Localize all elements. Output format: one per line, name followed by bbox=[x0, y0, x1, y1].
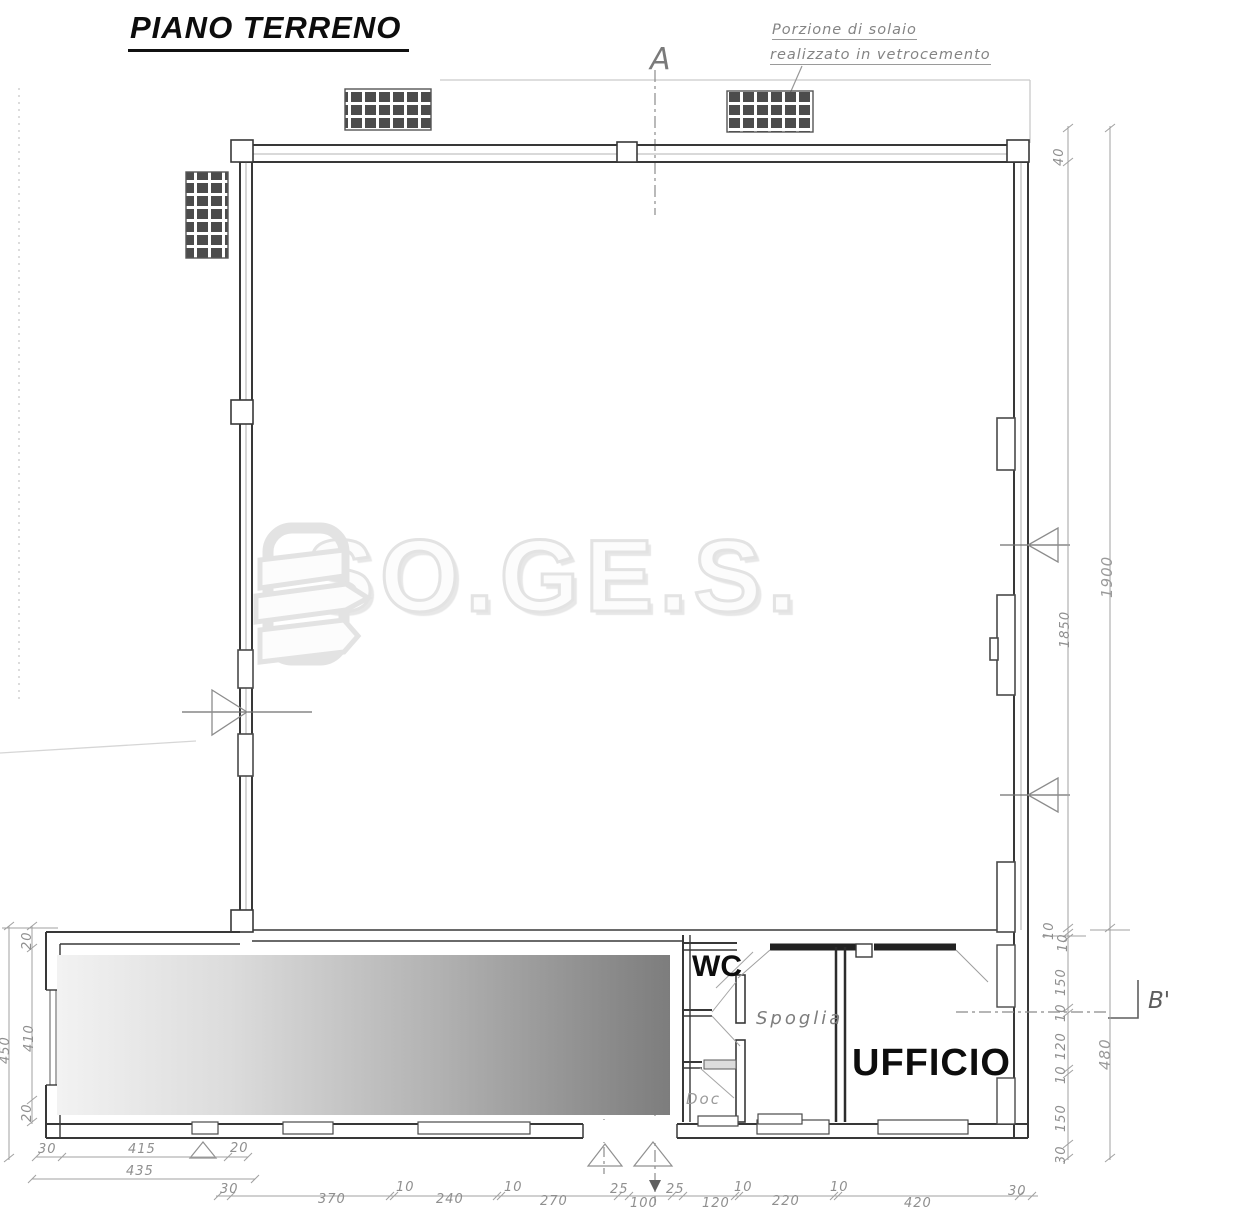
dim-right-30: 30 bbox=[1054, 1145, 1069, 1164]
dim-bottom-11: 220 bbox=[772, 1194, 800, 1209]
dim-right-10a: 10 bbox=[1042, 921, 1057, 940]
dim-bottom-12: 10 bbox=[830, 1180, 849, 1195]
dim-bottom-9: 120 bbox=[702, 1196, 730, 1211]
wall-columns bbox=[231, 140, 1029, 932]
page-title: PIANO TERRENO bbox=[128, 10, 409, 52]
annex-bottom-openings bbox=[190, 1120, 968, 1166]
dim-annex-30: 30 bbox=[38, 1142, 57, 1157]
dim-right-150b: 150 bbox=[1054, 1104, 1069, 1132]
dim-right-480: 480 bbox=[1096, 1038, 1114, 1070]
dim-right-1850: 1850 bbox=[1058, 611, 1073, 648]
floor-plan-page: SO.GE.S. bbox=[0, 0, 1237, 1213]
dim-bottom-5: 270 bbox=[540, 1194, 568, 1209]
dim-bottom-0: 30 bbox=[220, 1182, 239, 1197]
dim-bottom-13: 420 bbox=[904, 1196, 932, 1211]
dim-right-10c: 10 bbox=[1054, 1003, 1069, 1022]
dim-bottom-1: 370 bbox=[318, 1192, 346, 1207]
dim-right-1900: 1900 bbox=[1098, 556, 1116, 598]
dim-bottom-2: 10 bbox=[396, 1180, 415, 1195]
dim-right-10b: 10 bbox=[1056, 933, 1071, 952]
dim-annex-435: 435 bbox=[126, 1164, 154, 1179]
room-label-ufficio: UFFICIO bbox=[852, 1042, 1011, 1085]
dim-bottom-10: 10 bbox=[734, 1180, 753, 1195]
dim-bottom-14: 30 bbox=[1008, 1184, 1027, 1199]
dim-right-120: 120 bbox=[1054, 1032, 1069, 1060]
glass-block-grid-left bbox=[186, 172, 228, 258]
redacted-area bbox=[57, 955, 670, 1115]
note-line-1: Porzione di solaio bbox=[772, 22, 917, 40]
dim-bottom-3: 240 bbox=[436, 1192, 464, 1207]
dim-left-410: 410 bbox=[22, 1024, 37, 1052]
room-label-doc: Doc bbox=[686, 1090, 721, 1108]
dim-left-20a: 20 bbox=[20, 931, 35, 950]
dim-bottom-4: 10 bbox=[504, 1180, 523, 1195]
glass-block-grid-top-right bbox=[727, 91, 813, 132]
office-partitions bbox=[738, 944, 1015, 1124]
dim-left-450: 450 bbox=[0, 1036, 13, 1064]
room-label-spoglia: Spoglia bbox=[756, 1008, 843, 1029]
dim-annex-415: 415 bbox=[128, 1142, 156, 1157]
dim-annex-20: 20 bbox=[230, 1141, 249, 1156]
dim-right-150a: 150 bbox=[1054, 968, 1069, 996]
room-label-wc: WC bbox=[692, 950, 742, 984]
glass-block-grid-top-left bbox=[345, 89, 431, 130]
dim-right-40: 40 bbox=[1052, 147, 1067, 166]
section-marker-a: A bbox=[650, 42, 671, 77]
dim-right-10d: 10 bbox=[1054, 1065, 1069, 1084]
section-line-b bbox=[956, 980, 1138, 1018]
window-marker-icon bbox=[182, 528, 1070, 812]
dim-bottom-8: 25 bbox=[666, 1182, 685, 1197]
section-marker-b: B' bbox=[1148, 988, 1170, 1014]
dim-bottom-6: 25 bbox=[610, 1182, 629, 1197]
note-line-2: realizzato in vetrocemento bbox=[770, 47, 991, 65]
slab-outline bbox=[0, 80, 1030, 753]
dim-left-20b: 20 bbox=[20, 1103, 35, 1122]
dim-bottom-7: 100 bbox=[630, 1196, 658, 1211]
